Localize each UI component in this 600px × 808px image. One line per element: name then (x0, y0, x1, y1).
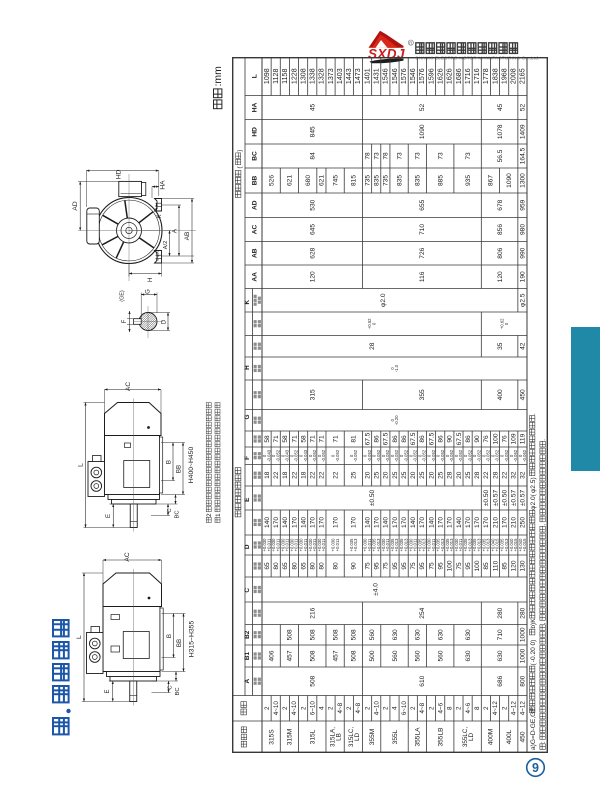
svg-text:4~8: 4~8 (419, 702, 426, 713)
svg-text:73: 73 (465, 152, 472, 160)
svg-text:1228: 1228 (290, 68, 298, 84)
svg-text:58: 58 (282, 435, 289, 443)
svg-text:1626: 1626 (446, 68, 454, 84)
svg-text:1778: 1778 (482, 68, 490, 84)
svg-text:75: 75 (383, 562, 390, 570)
svg-text:680: 680 (305, 175, 312, 186)
svg-text:22: 22 (332, 471, 339, 479)
svg-text:845: 845 (310, 126, 317, 137)
svg-text:630: 630 (438, 629, 445, 640)
svg-text:2: 2 (300, 706, 307, 710)
svg-text:22: 22 (483, 471, 490, 479)
svg-text:526: 526 (268, 175, 275, 186)
svg-text:86: 86 (465, 435, 472, 443)
svg-text:959: 959 (520, 199, 527, 210)
svg-text:710: 710 (497, 629, 504, 640)
svg-text:AA: AA (251, 272, 258, 282)
svg-text:±4.0: ±4.0 (373, 583, 380, 596)
svg-text:20: 20 (410, 471, 417, 479)
svg-text:φ2.0: φ2.0 (380, 293, 387, 307)
svg-text:450: 450 (520, 389, 527, 400)
svg-text:355M: 355M (369, 729, 376, 746)
svg-text:1546: 1546 (391, 68, 399, 84)
svg-text:HA: HA (251, 103, 258, 113)
svg-text:4~8: 4~8 (337, 702, 344, 713)
svg-text:508: 508 (351, 650, 358, 661)
svg-text:1409: 1409 (520, 124, 527, 139)
svg-text:2: 2 (501, 706, 508, 710)
svg-text:25: 25 (351, 471, 358, 479)
svg-text:1000: 1000 (520, 648, 527, 663)
svg-text:628: 628 (310, 247, 317, 258)
svg-text:BB: BB (176, 639, 183, 647)
svg-text:A: A (171, 228, 178, 233)
svg-text:71: 71 (332, 435, 339, 443)
svg-text:2: 2 (456, 706, 463, 710)
svg-text:1098: 1098 (263, 68, 271, 84)
svg-text:2: 2 (264, 706, 271, 710)
svg-text:95: 95 (374, 562, 381, 570)
svg-text:560: 560 (369, 629, 376, 640)
svg-text:80: 80 (310, 562, 317, 570)
svg-text:85: 85 (502, 562, 509, 570)
svg-text:22: 22 (310, 471, 317, 479)
svg-text:AB: AB (184, 231, 191, 240)
svg-text:621: 621 (319, 175, 326, 186)
svg-text:867: 867 (488, 175, 495, 186)
svg-text:2: 2 (346, 706, 353, 710)
svg-text:655: 655 (419, 199, 426, 210)
svg-text:E: E (105, 689, 111, 693)
svg-text:170: 170 (392, 517, 399, 528)
svg-text:980: 980 (520, 224, 527, 235)
svg-text:1158: 1158 (281, 69, 289, 84)
svg-text:2: 2 (206, 513, 213, 517)
svg-text:735: 735 (364, 175, 371, 186)
svg-text:400M: 400M (488, 729, 495, 746)
svg-text:116: 116 (419, 271, 426, 282)
svg-text:170: 170 (273, 517, 280, 528)
svg-text:120: 120 (497, 271, 504, 282)
svg-text:170: 170 (332, 517, 339, 528)
svg-text:0: 0 (371, 322, 376, 325)
svg-text:78: 78 (364, 152, 371, 160)
svg-text:±0.50: ±0.50 (483, 489, 490, 506)
svg-text:AC: AC (124, 552, 131, 561)
svg-text:(GE): (GE) (120, 290, 126, 302)
svg-text:(: ( (237, 166, 244, 169)
svg-text:90: 90 (474, 435, 481, 443)
svg-text:315: 315 (310, 389, 317, 400)
svg-text:LD: LD (468, 733, 475, 742)
svg-text:25: 25 (392, 471, 399, 479)
svg-text:D: D (244, 544, 251, 549)
svg-text:E: E (106, 514, 112, 518)
svg-text:20: 20 (383, 471, 390, 479)
svg-text:170: 170 (319, 517, 326, 528)
svg-text:170: 170 (291, 517, 298, 528)
svg-text:H400~H450: H400~H450 (188, 447, 195, 484)
svg-text:630: 630 (465, 629, 472, 640)
svg-text:BC: BC (175, 510, 181, 518)
svg-text:835: 835 (374, 175, 381, 186)
svg-text:355LA: 355LA (415, 727, 422, 747)
svg-text:560: 560 (438, 650, 445, 661)
svg-text:210: 210 (492, 517, 499, 528)
svg-text:457: 457 (332, 650, 339, 661)
svg-text:67.5: 67.5 (410, 432, 417, 445)
svg-text:86: 86 (392, 435, 399, 443)
svg-text:100: 100 (492, 433, 499, 444)
svg-text:508: 508 (310, 629, 317, 640)
svg-text:140: 140 (428, 517, 435, 528)
svg-text:B: B (165, 460, 172, 464)
svg-text:95: 95 (465, 562, 472, 570)
svg-text:71: 71 (291, 435, 298, 443)
svg-text:25: 25 (374, 471, 381, 479)
svg-text:G: G (146, 289, 152, 294)
svg-text:81: 81 (351, 435, 358, 443)
svg-text:+0.013: +0.013 (353, 538, 358, 552)
svg-text:254: 254 (419, 607, 426, 618)
svg-text:AD: AD (251, 200, 258, 210)
svg-text:2008: 2008 (510, 68, 518, 84)
svg-text:-0.062: -0.062 (522, 449, 527, 462)
svg-text:±0.57: ±0.57 (492, 489, 499, 506)
svg-text:+0.011: +0.011 (335, 538, 340, 551)
svg-text:835: 835 (415, 175, 422, 186)
svg-text:0): 0) (530, 640, 537, 646)
svg-text:164.5: 164.5 (520, 147, 527, 164)
svg-text:1431: 1431 (373, 68, 381, 84)
svg-text:170: 170 (438, 517, 445, 528)
svg-text:4~12: 4~12 (492, 701, 499, 716)
svg-text:18: 18 (264, 471, 271, 479)
svg-text:1090: 1090 (506, 173, 513, 188)
svg-text:4~6: 4~6 (437, 702, 444, 713)
svg-text:610: 610 (419, 675, 426, 686)
svg-text:25: 25 (438, 471, 445, 479)
svg-text:67.5: 67.5 (428, 432, 435, 445)
svg-text:806: 806 (497, 247, 504, 258)
svg-text:28: 28 (474, 471, 481, 479)
svg-text:84: 84 (310, 152, 317, 160)
svg-text:D: D (161, 319, 167, 324)
svg-text:C: C (168, 685, 174, 689)
svg-text:1308: 1308 (299, 68, 307, 84)
svg-text:22: 22 (291, 471, 298, 479)
svg-text:+0.011: +0.011 (321, 538, 326, 551)
svg-text:4: 4 (319, 706, 326, 710)
svg-text:4: 4 (392, 706, 399, 710)
svg-text:32: 32 (520, 471, 527, 479)
svg-text:726: 726 (419, 247, 426, 258)
svg-text:28: 28 (369, 342, 376, 350)
svg-text:355: 355 (419, 389, 426, 400)
svg-text:508: 508 (310, 650, 317, 661)
svg-text:8: 8 (447, 706, 454, 710)
svg-text:0: 0 (504, 322, 509, 325)
svg-text:75: 75 (428, 562, 435, 570)
svg-text:.: . (540, 439, 547, 441)
svg-text:140: 140 (410, 517, 417, 528)
svg-text:1968: 1968 (501, 68, 509, 84)
svg-text:G: G (244, 414, 251, 419)
svg-text:1626: 1626 (437, 68, 445, 84)
svg-text:630: 630 (415, 629, 422, 640)
svg-text:678: 678 (497, 199, 504, 210)
svg-text:100: 100 (447, 560, 454, 571)
svg-text:1686: 1686 (455, 68, 463, 84)
svg-text:990: 990 (520, 247, 527, 258)
svg-text:745: 745 (332, 175, 339, 186)
svg-text:BB: BB (175, 465, 182, 473)
svg-text:1473: 1473 (354, 68, 362, 84)
svg-text:315S: 315S (268, 729, 275, 745)
svg-text:140: 140 (456, 517, 463, 528)
svg-text:4~12: 4~12 (520, 701, 527, 716)
svg-text:95: 95 (419, 562, 426, 570)
svg-text:76: 76 (483, 435, 490, 443)
svg-text:710: 710 (419, 224, 426, 235)
svg-text:6~10: 6~10 (401, 701, 408, 716)
svg-text:735: 735 (383, 175, 390, 186)
svg-text:508: 508 (287, 629, 294, 640)
svg-text:L: L (251, 74, 258, 78)
svg-text:1401: 1401 (363, 68, 371, 84)
svg-text:75: 75 (456, 562, 463, 570)
svg-text:8: 8 (474, 706, 481, 710)
svg-text:170: 170 (465, 517, 472, 528)
svg-text:45: 45 (497, 104, 504, 112)
svg-text:BC: BC (251, 151, 258, 161)
svg-text:95: 95 (438, 562, 445, 570)
svg-text:HD: HD (116, 169, 123, 179)
svg-text:58: 58 (264, 435, 271, 443)
svg-text:HA: HA (160, 180, 167, 190)
svg-text:+0.015: +0.015 (522, 538, 527, 552)
svg-text:K: K (157, 214, 163, 218)
svg-text:80: 80 (273, 562, 280, 570)
svg-text:885: 885 (438, 175, 445, 186)
svg-text:400: 400 (497, 389, 504, 400)
svg-text:32: 32 (511, 471, 518, 479)
svg-text:73: 73 (415, 152, 422, 160)
svg-text:140: 140 (300, 517, 307, 528)
svg-text:B: B (166, 634, 173, 638)
svg-text:216: 216 (310, 607, 317, 618)
svg-text:52: 52 (419, 104, 426, 112)
svg-text:85: 85 (483, 562, 490, 570)
svg-text:73: 73 (396, 152, 403, 160)
svg-text:2: 2 (383, 706, 390, 710)
svg-text:-0.052: -0.052 (321, 449, 326, 462)
svg-text:-0.20: -0.20 (394, 415, 399, 425)
svg-text:65: 65 (300, 562, 307, 570)
svg-text:BB: BB (251, 176, 258, 186)
svg-text:AD: AD (72, 201, 79, 210)
svg-text:B1: B1 (244, 651, 251, 660)
svg-text:25: 25 (401, 471, 408, 479)
svg-text:9: 9 (532, 761, 539, 775)
svg-text:71: 71 (273, 435, 280, 443)
svg-text:-0.052: -0.052 (353, 449, 358, 462)
svg-text:-0.20: -0.20 (530, 647, 537, 662)
svg-text:AC: AC (251, 225, 258, 235)
svg-text:F: F (122, 319, 128, 323)
svg-text:250: 250 (520, 517, 527, 528)
svg-text:119: 119 (520, 433, 527, 444)
svg-text:80: 80 (319, 562, 326, 570)
svg-text:,: , (540, 622, 547, 624)
svg-text:170: 170 (474, 517, 481, 528)
svg-text:75: 75 (410, 562, 417, 570)
svg-text:42: 42 (520, 342, 527, 350)
svg-text:2: 2 (428, 706, 435, 710)
svg-text:4~6: 4~6 (465, 702, 472, 713)
svg-text:130: 130 (520, 560, 527, 571)
svg-text:2: 2 (282, 706, 289, 710)
svg-text:45: 45 (310, 104, 317, 112)
svg-text:67.5: 67.5 (383, 432, 390, 445)
svg-text:HD: HD (251, 127, 258, 137)
svg-text:6~10: 6~10 (310, 701, 317, 716)
svg-text:815: 815 (351, 175, 358, 186)
svg-text:1338: 1338 (309, 68, 317, 84)
svg-text:508: 508 (351, 629, 358, 640)
svg-text:1403: 1403 (336, 68, 344, 84)
svg-text:28: 28 (447, 471, 454, 479)
svg-text:1596: 1596 (427, 68, 435, 84)
svg-text:280: 280 (520, 607, 527, 618)
svg-text:R: R (409, 40, 412, 45)
svg-text:1328: 1328 (318, 68, 326, 84)
svg-text:,: , (540, 524, 547, 526)
svg-text:280: 280 (497, 607, 504, 618)
svg-text:508: 508 (332, 629, 339, 640)
svg-text::: : (540, 741, 547, 743)
svg-text:AC: AC (125, 382, 132, 391)
svg-text:±0.57: ±0.57 (520, 489, 527, 506)
svg-text:355LB: 355LB (438, 727, 445, 747)
svg-text:-0.052: -0.052 (335, 449, 340, 462)
svg-text:.: . (530, 413, 537, 415)
svg-text:90: 90 (351, 562, 358, 570)
svg-text:355L: 355L (392, 729, 399, 744)
svg-text:L: L (77, 463, 84, 467)
svg-text:22: 22 (273, 471, 280, 479)
svg-text:100: 100 (474, 560, 481, 571)
svg-text:1078: 1078 (497, 124, 504, 139)
svg-text:A/2: A/2 (163, 241, 169, 249)
svg-text:170: 170 (310, 517, 317, 528)
svg-text:1373: 1373 (327, 68, 335, 84)
svg-text:±0.50: ±0.50 (369, 489, 376, 506)
svg-text:71: 71 (319, 435, 326, 443)
svg-text:686: 686 (497, 675, 504, 686)
svg-text:140: 140 (383, 517, 390, 528)
svg-text:22: 22 (319, 471, 326, 479)
svg-text:630: 630 (465, 650, 472, 661)
svg-text:170: 170 (502, 517, 509, 528)
svg-text:73: 73 (374, 152, 381, 160)
svg-text:1300: 1300 (520, 173, 527, 188)
svg-text:±0.57: ±0.57 (511, 489, 518, 506)
svg-text:1716: 1716 (473, 68, 481, 84)
svg-text:457: 457 (287, 650, 294, 661)
svg-text:LB: LB (336, 733, 343, 741)
svg-text:56.5: 56.5 (497, 149, 504, 162)
svg-text:1716: 1716 (464, 68, 472, 84)
svg-text::mm: :mm (212, 66, 224, 87)
svg-text:18: 18 (300, 471, 307, 479)
svg-text:2165: 2165 (519, 68, 527, 84)
svg-text:): ) (237, 150, 244, 152)
svg-text:B2: B2 (244, 630, 251, 639)
svg-text:22: 22 (502, 471, 509, 479)
svg-text:φ2.5: φ2.5 (520, 293, 527, 307)
svg-text:BC: BC (175, 687, 181, 695)
svg-text:58: 58 (300, 435, 307, 443)
svg-text:110: 110 (492, 560, 499, 571)
svg-text:H: H (244, 365, 251, 370)
svg-text:35: 35 (497, 342, 504, 350)
svg-text:K: K (244, 300, 251, 305)
svg-text:86: 86 (401, 435, 408, 443)
svg-text:400L: 400L (506, 729, 513, 744)
svg-text:140: 140 (264, 517, 271, 528)
svg-text:20: 20 (456, 471, 463, 479)
svg-text:560: 560 (392, 650, 399, 661)
svg-text:1838: 1838 (491, 68, 499, 84)
svg-text:630: 630 (497, 650, 504, 661)
svg-text:856: 856 (497, 224, 504, 235)
svg-text:140: 140 (364, 517, 371, 528)
svg-text:1546: 1546 (409, 68, 417, 84)
svg-text:621: 621 (287, 175, 294, 186)
svg-text:H315~H355: H315~H355 (189, 621, 196, 658)
svg-text:C: C (244, 588, 251, 593)
svg-text:1576: 1576 (400, 68, 408, 84)
svg-text:4~8: 4~8 (355, 702, 362, 713)
svg-text:4~10: 4~10 (273, 701, 280, 716)
svg-text:67.5: 67.5 (456, 432, 463, 445)
svg-text:835: 835 (396, 175, 403, 186)
svg-text:F: F (244, 456, 251, 460)
svg-text:630: 630 (392, 629, 399, 640)
svg-text:86: 86 (438, 435, 445, 443)
svg-text:645: 645 (310, 224, 317, 235)
svg-text:170: 170 (351, 517, 358, 528)
svg-text:800: 800 (520, 675, 527, 686)
svg-text:95: 95 (401, 562, 408, 570)
svg-text:190: 190 (520, 271, 527, 282)
svg-text:315L: 315L (310, 729, 317, 744)
svg-text:315M: 315M (287, 729, 294, 746)
svg-text:2: 2 (328, 706, 335, 710)
svg-text:1: 1 (215, 513, 222, 517)
svg-text:H: H (148, 278, 154, 282)
svg-text:170: 170 (483, 517, 490, 528)
svg-text:2: 2 (364, 706, 371, 710)
svg-text:935: 935 (465, 175, 472, 186)
svg-text:78: 78 (383, 152, 390, 160)
svg-text:170: 170 (447, 517, 454, 528)
svg-text:508: 508 (310, 675, 317, 686)
svg-text:a)G=D-GE,GE: a)G=D-GE,GE (530, 707, 537, 750)
svg-text:A: A (244, 679, 251, 684)
svg-text:1443: 1443 (345, 68, 353, 84)
